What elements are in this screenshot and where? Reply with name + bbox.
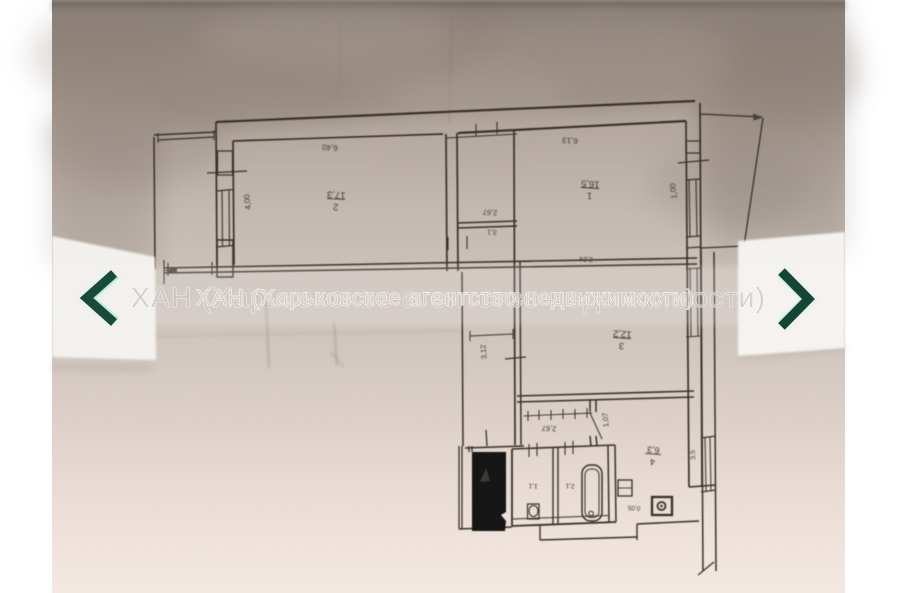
svg-text:2,24: 2,24 (579, 255, 593, 263)
svg-text:4: 4 (650, 457, 656, 467)
svg-text:ХАН (Харьковское агентство нед: ХАН (Харьковское агентство недвижимости) (196, 285, 694, 310)
svg-text:1,1: 1,1 (528, 482, 538, 490)
svg-text:1: 1 (587, 190, 593, 201)
svg-text:2,67: 2,67 (541, 424, 556, 434)
svg-text:3,12: 3,12 (478, 344, 488, 359)
svg-text:3,1: 3,1 (487, 228, 497, 236)
svg-text:2,1: 2,1 (565, 482, 575, 490)
svg-text:6,40: 6,40 (321, 142, 338, 152)
svg-text:6,13: 6,13 (561, 135, 578, 145)
svg-text:0,05: 0,05 (627, 504, 640, 512)
svg-text:2: 2 (333, 201, 339, 212)
svg-text:1,07: 1,07 (600, 412, 610, 427)
svg-text:3,5: 3,5 (690, 450, 698, 460)
svg-text:3: 3 (619, 340, 625, 351)
svg-text:2,67: 2,67 (482, 208, 497, 218)
